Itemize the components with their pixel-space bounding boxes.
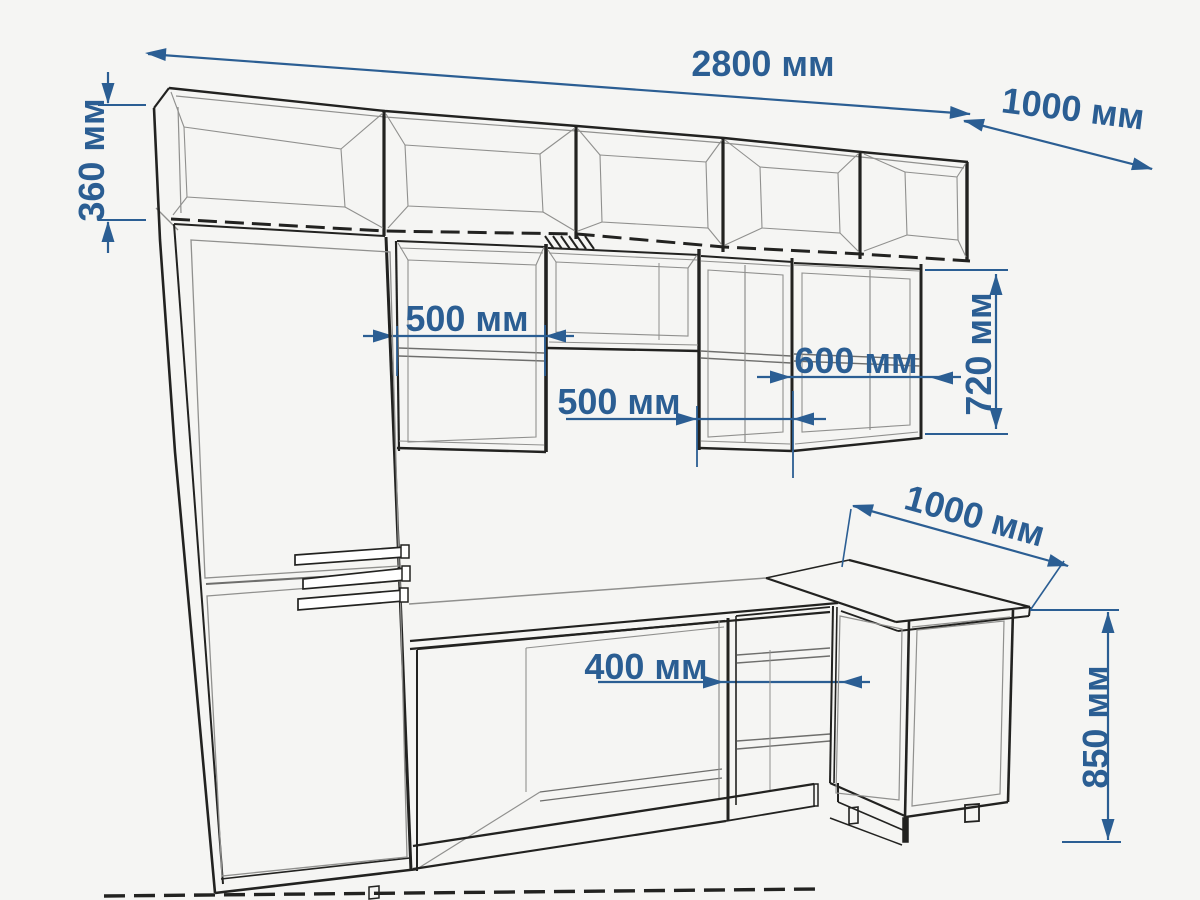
- svg-text:400 мм: 400 мм: [584, 646, 707, 687]
- svg-text:720 мм: 720 мм: [958, 292, 999, 415]
- svg-text:500 мм: 500 мм: [557, 381, 680, 422]
- svg-text:500 мм: 500 мм: [405, 298, 528, 339]
- svg-text:360 мм: 360 мм: [71, 98, 112, 221]
- svg-text:2800 мм: 2800 мм: [691, 43, 834, 84]
- svg-text:600 мм: 600 мм: [794, 340, 917, 381]
- svg-text:850 мм: 850 мм: [1075, 665, 1116, 788]
